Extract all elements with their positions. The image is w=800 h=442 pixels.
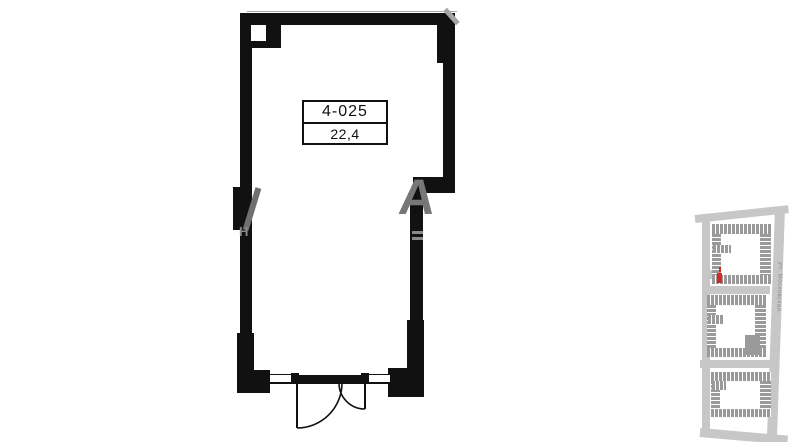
door-post-left — [291, 373, 299, 384]
building-2-col-left — [707, 305, 716, 348]
wall-bottom-right-corner — [388, 368, 424, 397]
door-arc-right — [339, 383, 365, 409]
site-minimap: ул. Московская — [693, 200, 800, 442]
building-1-inner-step — [713, 245, 731, 253]
building-2-inner-step — [708, 315, 724, 324]
wall-right-upper — [443, 63, 455, 177]
minimap-building-3 — [711, 372, 771, 417]
window-right — [367, 374, 391, 383]
watermark-dash-2 — [412, 237, 423, 240]
building-2-corner-chunk — [745, 335, 760, 355]
unit-area: 22,4 — [304, 124, 386, 143]
minimap-highlight-tick — [719, 267, 721, 272]
minimap-highlight-unit — [717, 273, 722, 283]
building-2-row-top — [707, 295, 766, 305]
unit-label-box: 4-025 22,4 — [302, 100, 388, 145]
minimap-road-cross-1 — [702, 286, 770, 294]
unit-number: 4-025 — [304, 102, 386, 124]
wall-notch — [251, 25, 266, 41]
minimap-road-cross-2 — [700, 360, 772, 368]
door-header — [292, 375, 368, 383]
wall-right-lower-wide — [407, 320, 424, 370]
minimap-building-2 — [707, 295, 766, 357]
building-3-row-top — [711, 372, 771, 381]
wall-left-pilaster — [233, 187, 240, 230]
floor-plan-page: Н А 4-025 22,4 — [0, 0, 800, 442]
street-label: ул. Московская — [775, 262, 783, 312]
wall-bottom-left-corner — [237, 370, 270, 393]
building-1-col-right — [760, 234, 771, 275]
building-3-row-bottom — [711, 409, 771, 417]
watermark-dash-1 — [412, 231, 423, 234]
building-1-row-top — [712, 224, 771, 234]
wall-left — [240, 13, 252, 333]
door-arc-left — [297, 383, 342, 428]
building-3-inner-step — [712, 381, 726, 390]
building-3-col-right — [760, 381, 771, 409]
top-construction-line — [247, 11, 457, 12]
door-post-right — [361, 373, 369, 384]
wall-right-jog — [413, 177, 455, 193]
